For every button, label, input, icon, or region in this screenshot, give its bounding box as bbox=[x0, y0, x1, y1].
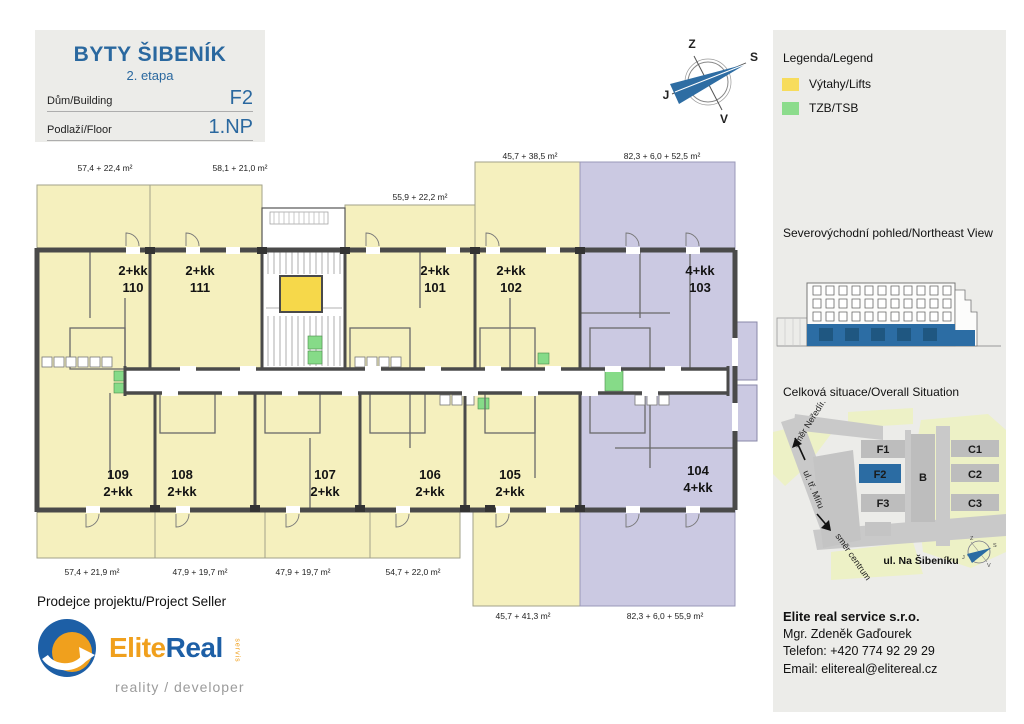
svg-text:V: V bbox=[987, 563, 991, 569]
elitereal-logo-icon bbox=[35, 615, 101, 681]
lift-shaft-2 bbox=[605, 371, 623, 391]
svg-text:110: 110 bbox=[123, 280, 144, 295]
floor-plan: 2+kk 110 2+kk 111 2+kk 101 2+kk 102 4+kk… bbox=[30, 148, 760, 623]
seller-person: Mgr. Zdeněk Gaďourek bbox=[783, 626, 998, 644]
seller-phone: Telefon: +420 774 92 29 29 bbox=[783, 643, 998, 661]
elevation-drawing bbox=[773, 268, 1006, 363]
seller-email: Email: elitereal@elitereal.cz bbox=[783, 661, 998, 679]
area-109: 57,4 + 21,9 m² bbox=[64, 567, 119, 577]
tzb-color-swatch bbox=[782, 102, 799, 115]
page: BYTY ŠIBENÍK 2. etapa Dům/Building F2 Po… bbox=[0, 0, 1024, 724]
svg-text:S: S bbox=[993, 543, 997, 549]
map-label-f2: F2 bbox=[874, 469, 887, 481]
area-110: 57,4 + 22,4 m² bbox=[77, 163, 132, 173]
svg-text:107: 107 bbox=[314, 467, 336, 482]
map-label-b: B bbox=[919, 472, 927, 484]
area-111: 58,1 + 21,0 m² bbox=[212, 163, 267, 173]
svg-text:4+kk: 4+kk bbox=[685, 263, 715, 278]
svg-text:2+kk: 2+kk bbox=[415, 484, 445, 499]
map-label-c2: C2 bbox=[968, 469, 982, 481]
area-107: 47,9 + 19,7 m² bbox=[275, 567, 330, 577]
seller-company: Elite real service s.r.o. bbox=[783, 608, 998, 626]
terrace-108 bbox=[155, 510, 265, 558]
svg-text:2+kk: 2+kk bbox=[310, 484, 340, 499]
compass-z: Z bbox=[688, 37, 695, 51]
legend-item-lifts: Výtahy/Lifts bbox=[782, 77, 871, 91]
area-108: 47,9 + 19,7 m² bbox=[172, 567, 227, 577]
map-label-f3: F3 bbox=[877, 498, 890, 510]
svg-text:2+kk: 2+kk bbox=[495, 484, 525, 499]
legend-lifts-label: Výtahy/Lifts bbox=[809, 77, 871, 91]
svg-text:2+kk: 2+kk bbox=[420, 263, 450, 278]
info-sidebar: Legenda/Legend Výtahy/Lifts TZB/TSB Seve… bbox=[773, 30, 1006, 712]
terrace-101 bbox=[345, 205, 475, 250]
terrace-102 bbox=[475, 162, 580, 250]
building-label: Dům/Building bbox=[47, 95, 112, 110]
logo-wordmark: EliteReal bbox=[109, 632, 223, 664]
svg-text:111: 111 bbox=[190, 280, 210, 295]
svg-text:108: 108 bbox=[171, 467, 193, 482]
map-street-na-sibeniku: ul. Na Šibeníku bbox=[883, 554, 958, 567]
terrace-109 bbox=[37, 510, 155, 558]
svg-text:103: 103 bbox=[689, 280, 711, 295]
map-label-f1: F1 bbox=[877, 444, 890, 456]
svg-text:2+kk: 2+kk bbox=[167, 484, 197, 499]
svg-text:4+kk: 4+kk bbox=[683, 480, 713, 495]
svg-text:106: 106 bbox=[419, 467, 441, 482]
area-102: 45,7 + 38,5 m² bbox=[502, 151, 557, 161]
compass-rose-icon: Z S J V bbox=[660, 34, 764, 128]
compass-v: V bbox=[720, 112, 728, 126]
svg-text:101: 101 bbox=[424, 280, 446, 295]
area-106: 54,7 + 22,0 m² bbox=[385, 567, 440, 577]
elevation-title: Severovýchodní pohled/Northeast View bbox=[783, 226, 993, 240]
svg-text:2+kk: 2+kk bbox=[185, 263, 215, 278]
area-105: 45,7 + 41,3 m² bbox=[495, 611, 550, 621]
svg-text:2+kk: 2+kk bbox=[103, 484, 133, 499]
area-104: 82,3 + 6,0 + 55,9 m² bbox=[627, 611, 704, 621]
legend-tzb-label: TZB/TSB bbox=[809, 101, 858, 115]
terrace-104 bbox=[580, 510, 735, 606]
compass-j: J bbox=[663, 88, 670, 102]
svg-text:J: J bbox=[962, 555, 965, 561]
building-value: F2 bbox=[230, 87, 253, 110]
situation-title: Celková situace/Overall Situation bbox=[783, 385, 959, 399]
floor-label: Podlaží/Floor bbox=[47, 124, 112, 139]
svg-text:102: 102 bbox=[500, 280, 522, 295]
logo-tagline: reality / developer bbox=[115, 679, 265, 695]
lift-shaft bbox=[280, 276, 322, 312]
terrace-110 bbox=[37, 185, 150, 250]
svg-text:104: 104 bbox=[687, 463, 709, 478]
terrace-106 bbox=[370, 510, 460, 558]
svg-text:2+kk: 2+kk bbox=[496, 263, 526, 278]
legend-item-tzb: TZB/TSB bbox=[782, 101, 858, 115]
seller-contact: Elite real service s.r.o. Mgr. Zdeněk Ga… bbox=[783, 608, 998, 678]
project-header: BYTY ŠIBENÍK 2. etapa Dům/Building F2 Po… bbox=[35, 30, 265, 142]
area-101: 55,9 + 22,2 m² bbox=[392, 192, 447, 202]
area-103: 82,3 + 6,0 + 52,5 m² bbox=[624, 151, 701, 161]
logo-servis-text: servis bbox=[233, 638, 240, 662]
map-label-c3: C3 bbox=[968, 498, 982, 510]
seller-heading: Prodejce projektu/Project Seller bbox=[37, 594, 226, 609]
page-subtitle: 2. etapa bbox=[35, 68, 265, 83]
floor-value: 1.NP bbox=[209, 116, 253, 139]
terrace-111 bbox=[150, 185, 262, 250]
terrace-103 bbox=[580, 162, 735, 250]
terrace-107 bbox=[265, 510, 370, 558]
lift-color-swatch bbox=[782, 78, 799, 91]
compass-s: S bbox=[750, 50, 758, 64]
svg-text:105: 105 bbox=[499, 467, 521, 482]
map-label-c1: C1 bbox=[968, 444, 982, 456]
legend-title: Legenda/Legend bbox=[783, 51, 873, 65]
svg-text:2+kk: 2+kk bbox=[118, 263, 148, 278]
page-title: BYTY ŠIBENÍK bbox=[35, 43, 265, 67]
situation-map: F1 F2 F3 B C1 C2 C3 ul. Na Šibeníku směr… bbox=[773, 402, 1006, 592]
svg-text:109: 109 bbox=[107, 467, 129, 482]
terrace-105 bbox=[473, 510, 580, 606]
elitereal-logo: EliteReal servis reality / developer bbox=[35, 615, 265, 707]
